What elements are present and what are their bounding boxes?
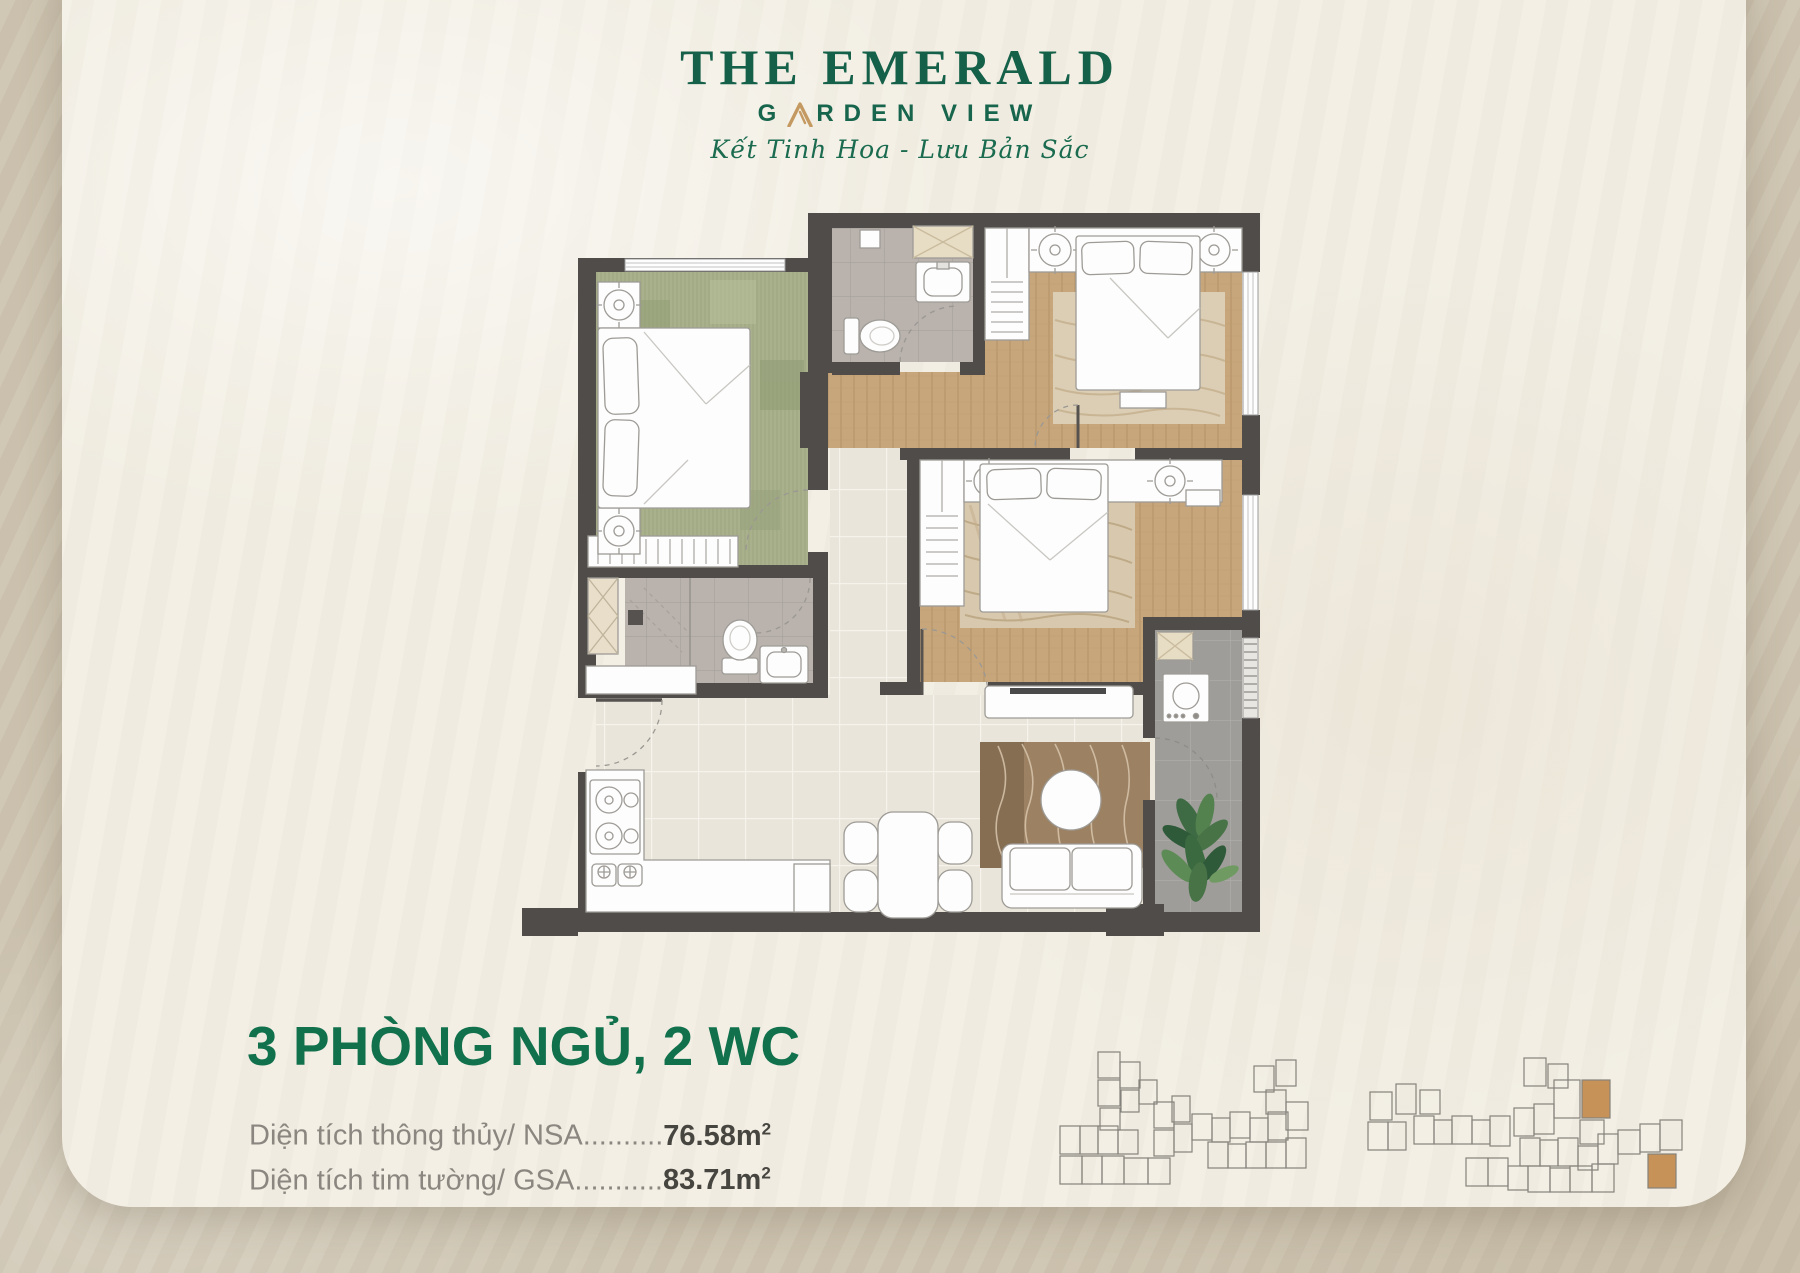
dining-chair: [844, 870, 878, 912]
dot-leader: ...........: [574, 1164, 663, 1196]
brand-subtitle-g: G: [758, 102, 787, 126]
keyplan-highlight-unit-top: [1582, 1080, 1610, 1118]
floorplan-drawing: [510, 160, 1300, 960]
bathroom1-shower: [913, 226, 973, 258]
bathroom2-toilet: [722, 620, 758, 674]
dining-table: [878, 812, 938, 918]
dining-chair: [938, 870, 972, 912]
unit-heading: 3 PHÒNG NGỦ, 2 WC: [247, 1014, 800, 1078]
bathroom1-sink: [916, 262, 970, 302]
dining-chair: [844, 822, 878, 864]
bathroom1-toilet: [844, 318, 900, 354]
brand-title: THE EMERALD: [0, 42, 1800, 92]
brand-subtitle-rest: RDEN VIEW: [816, 102, 1042, 126]
bedroom2-bench: [1120, 392, 1166, 408]
nsa-row: Diện tích thông thủy/ NSA..........76.58…: [249, 1110, 771, 1155]
bedroom3-wardrobe: [920, 460, 964, 606]
gsa-row: Diện tích tim tường/ GSA...........83.71…: [249, 1155, 771, 1200]
keyplan-right-building: [1368, 1058, 1682, 1192]
washing-machine: [1163, 674, 1209, 722]
dining-chair: [938, 822, 972, 864]
dot-leader: ..........: [583, 1120, 664, 1152]
keyplan-highlight-unit-bottom: [1648, 1154, 1676, 1188]
bedroom3-bed: [980, 464, 1108, 612]
keyplan-left-building: [1060, 1052, 1308, 1184]
keyplan-drawing: [1058, 1050, 1706, 1214]
bedroom1-bed: [598, 328, 750, 508]
entry-shoe-cabinet: [588, 578, 618, 654]
area-info: Diện tích thông thủy/ NSA..........76.58…: [249, 1110, 771, 1199]
sofa: [1002, 844, 1142, 908]
bedroom2-wardrobe: [985, 228, 1029, 340]
nsa-value: 76.58m2: [663, 1120, 771, 1152]
bedroom3-side-table: [1186, 490, 1220, 506]
bedroom2-bed: [1076, 236, 1200, 390]
corridor-tile-floor: [830, 448, 907, 698]
tv-console: [985, 686, 1133, 718]
gsa-label: Diện tích tim tường/ GSA: [249, 1164, 574, 1196]
entry-console: [586, 666, 696, 694]
brand-subtitle: GRDEN VIEW: [0, 102, 1800, 126]
mountain-peak-icon: [787, 102, 813, 127]
gsa-value: 83.71m2: [663, 1164, 771, 1196]
kitchen-fridge: [794, 864, 830, 912]
coffee-table: [1041, 770, 1101, 830]
bathroom1-wall-cabinet: [860, 230, 880, 248]
bathroom2-vanity: [760, 646, 808, 683]
nsa-label: Diện tích thông thủy/ NSA: [249, 1120, 583, 1152]
brand-logo: THE EMERALD GRDEN VIEW Kết Tinh Hoa - Lư…: [0, 42, 1800, 164]
loggia-laundry-sink: [1157, 632, 1193, 660]
